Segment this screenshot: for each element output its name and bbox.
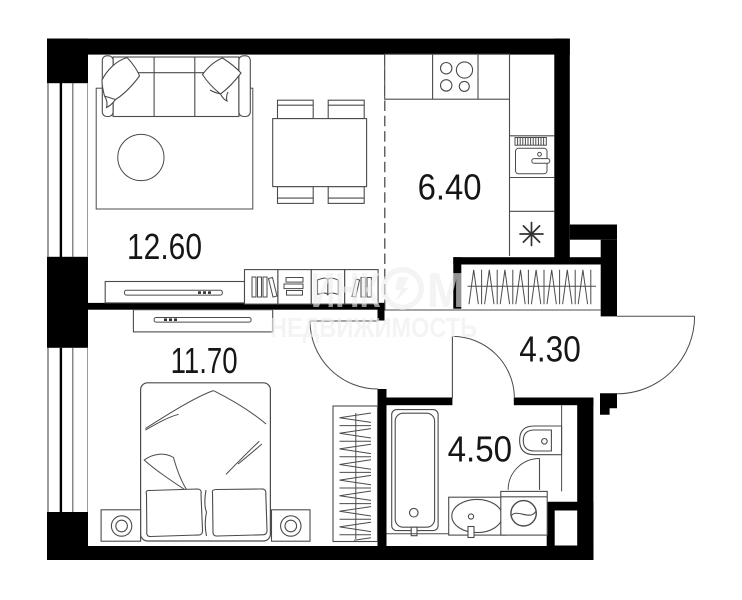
svg-text:11.70: 11.70 — [171, 340, 238, 381]
svg-text:6.40: 6.40 — [418, 167, 482, 208]
svg-text:4.30: 4.30 — [519, 329, 581, 370]
svg-text:4.50: 4.50 — [448, 429, 512, 470]
svg-text:12.60: 12.60 — [127, 226, 202, 267]
